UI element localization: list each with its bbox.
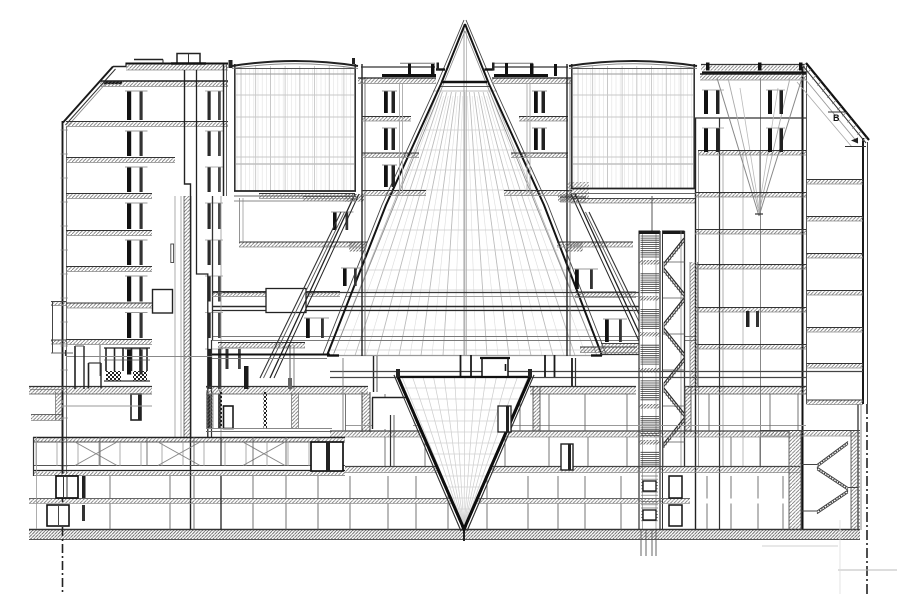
- svg-text:B: B: [833, 113, 840, 123]
